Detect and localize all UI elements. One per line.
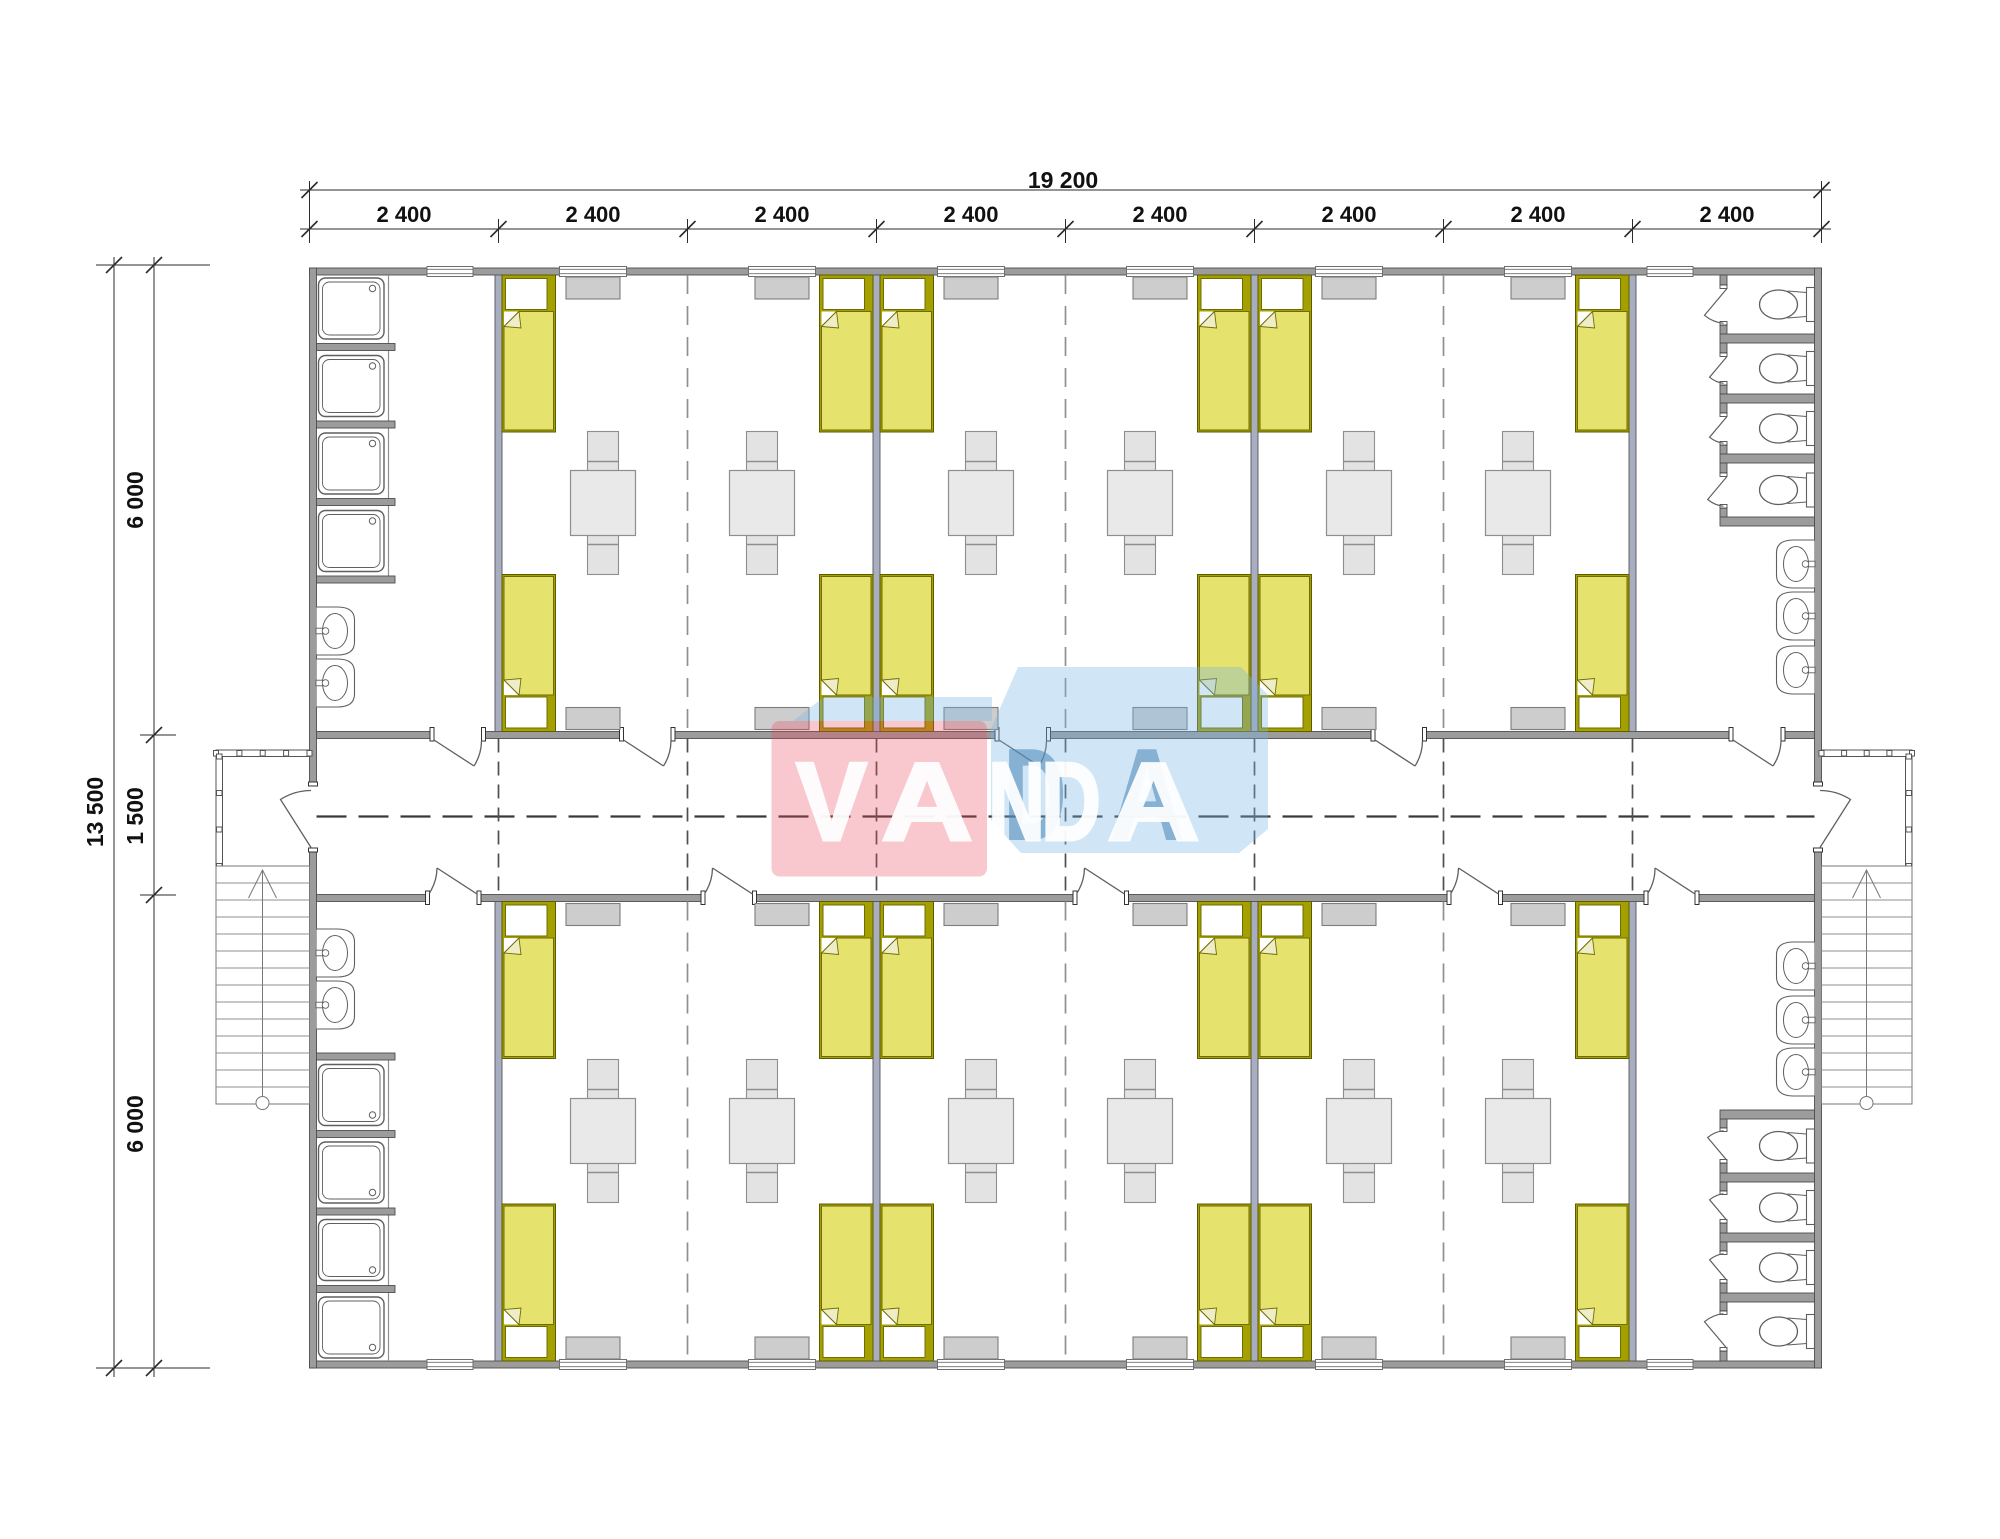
svg-text:6 000: 6 000	[122, 1095, 148, 1153]
svg-text:A: A	[881, 740, 973, 864]
svg-text:2 400: 2 400	[376, 202, 431, 227]
svg-text:2 400: 2 400	[1321, 202, 1376, 227]
svg-text:2 400: 2 400	[1132, 202, 1187, 227]
svg-text:2 400: 2 400	[943, 202, 998, 227]
svg-text:13 500: 13 500	[82, 777, 108, 847]
svg-text:6 000: 6 000	[122, 471, 148, 529]
svg-text:2 400: 2 400	[565, 202, 620, 227]
svg-text:D: D	[1041, 740, 1101, 864]
svg-text:2 400: 2 400	[1699, 202, 1754, 227]
svg-text:A: A	[1107, 740, 1200, 864]
svg-text:2 400: 2 400	[754, 202, 809, 227]
svg-text:V: V	[796, 740, 867, 864]
svg-text:N: N	[988, 740, 1045, 864]
svg-text:19 200: 19 200	[1028, 167, 1098, 193]
svg-text:1 500: 1 500	[122, 787, 148, 845]
svg-text:2 400: 2 400	[1510, 202, 1565, 227]
